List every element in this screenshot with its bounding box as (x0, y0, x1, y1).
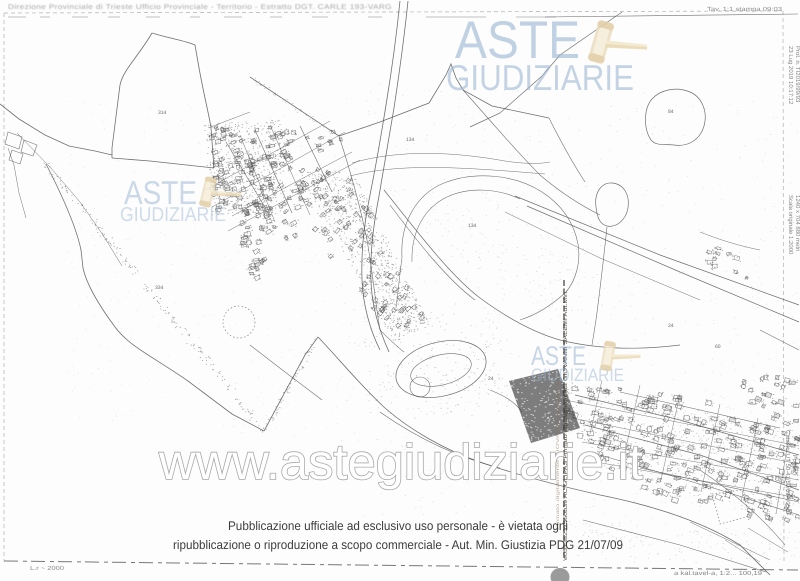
svg-text:Prot. n. TI2019/99/93: Prot. n. TI2019/99/93 (794, 46, 800, 103)
svg-text:a kal.tavel-a, 1:2... 100,19: a kal.tavel-a, 1:2... 100,19 (674, 570, 763, 577)
svg-text:334: 334 (155, 285, 164, 291)
svg-text:24: 24 (668, 323, 674, 329)
svg-text:134: 134 (468, 223, 477, 229)
svg-text:Pubblicazione ufficiale ad esc: Pubblicazione ufficiale ad esclusivo uso… (228, 519, 568, 533)
svg-text:Scala originale 1:2000: Scala originale 1:2000 (787, 195, 794, 255)
svg-text:GIUDIZIARIE: GIUDIZIARIE (446, 57, 634, 98)
svg-text:1240 x 704 880 metri: 1240 x 704 880 metri (794, 195, 800, 251)
svg-text:Tav. 1:1 stampa 09:03: Tav. 1:1 stampa 09:03 (707, 6, 783, 13)
svg-text:www.astegiudiziarie.it: www.astegiudiziarie.it (158, 434, 643, 490)
svg-text:134: 134 (406, 137, 415, 143)
svg-text:GIUDIZIARIE: GIUDIZIARIE (120, 204, 226, 226)
svg-text:ripubblicazione o riproduzione: ripubblicazione o riproduzione a scopo c… (173, 538, 623, 552)
svg-text:60: 60 (715, 344, 721, 350)
svg-text:Direzione Provinciale di Tries: Direzione Provinciale di Trieste Ufficio… (8, 3, 392, 11)
svg-text:L.r ~ 2000: L.r ~ 2000 (30, 565, 65, 572)
svg-text:23 Lug 2019 10:17:12: 23 Lug 2019 10:17:12 (787, 46, 794, 105)
svg-text:24: 24 (488, 376, 494, 382)
svg-text:84: 84 (668, 109, 674, 115)
svg-text:314: 314 (158, 110, 167, 116)
